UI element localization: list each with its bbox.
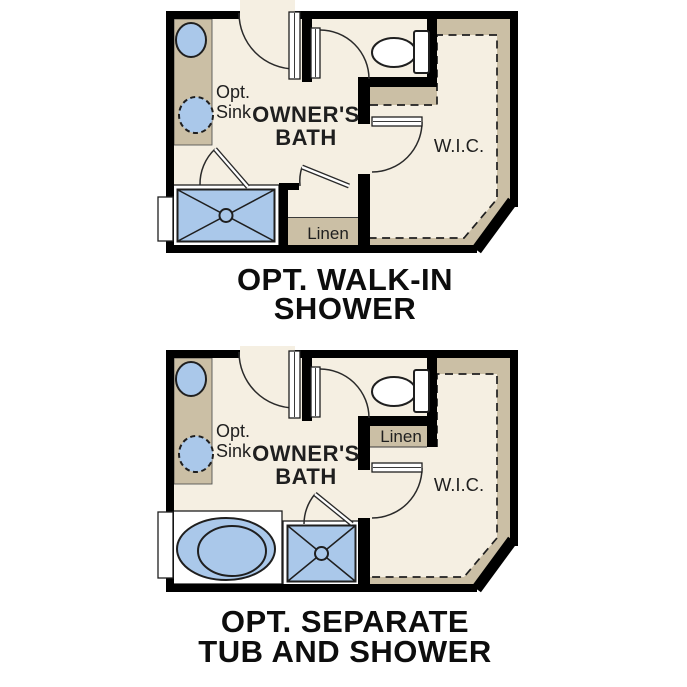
label-linen: Linen — [307, 224, 349, 243]
interior-wall-linen-top — [279, 183, 299, 190]
optional-sink — [179, 97, 213, 133]
floor-plan-page: Opt. Sink OWNER'S BATH W.I.C. Linen OPT.… — [0, 0, 687, 687]
toilet-tank — [414, 31, 429, 73]
window — [158, 197, 173, 241]
exterior-wall-right — [510, 11, 518, 207]
optional-sink — [179, 436, 213, 472]
exterior-wall-right — [510, 350, 518, 546]
caption-walk-in-shower-line2: SHOWER — [274, 291, 417, 326]
interior-wall-wic — [358, 518, 370, 592]
toilet-bowl — [372, 38, 416, 67]
plan-separate-tub-and-shower: Opt. Sink OWNER'S BATH W.I.C. Linen OPT.… — [158, 346, 518, 669]
label-wic: W.I.C. — [434, 474, 484, 495]
label-bath: BATH — [275, 464, 336, 489]
label-wic: W.I.C. — [434, 135, 484, 156]
shower-drain — [220, 209, 233, 222]
toilet-tank — [414, 370, 429, 412]
window — [158, 512, 173, 578]
label-linen: Linen — [380, 427, 422, 446]
bathtub-inner — [198, 526, 266, 576]
plan-walk-in-shower: Opt. Sink OWNER'S BATH W.I.C. Linen OPT.… — [158, 0, 518, 326]
exterior-wall-top — [166, 350, 240, 358]
label-owners: OWNER'S — [252, 441, 360, 466]
label-opt: Opt. — [216, 421, 250, 441]
label-bath: BATH — [275, 125, 336, 150]
sink — [176, 362, 206, 396]
exterior-wall-top — [295, 11, 518, 19]
shower-drain — [315, 547, 328, 560]
caption-separate-tub-shower-line2: TUB AND SHOWER — [198, 634, 491, 669]
toilet-bowl — [372, 377, 416, 406]
exterior-wall-top — [295, 350, 518, 358]
exterior-wall-top — [166, 11, 240, 19]
label-sink: Sink — [216, 102, 252, 122]
exterior-wall-bottom — [166, 245, 477, 253]
interior-wall-wic — [358, 174, 370, 253]
entry-opening-floor — [240, 0, 295, 19]
interior-wall-linen — [279, 183, 288, 253]
label-opt: Opt. — [216, 82, 250, 102]
sink — [176, 23, 206, 57]
interior-wall-linen-right — [427, 416, 437, 447]
entry-opening-floor — [240, 346, 295, 358]
label-sink: Sink — [216, 441, 252, 461]
floor-plan-diagram: Opt. Sink OWNER'S BATH W.I.C. Linen OPT.… — [0, 0, 687, 687]
exterior-wall-bottom — [166, 584, 477, 592]
label-owners: OWNER'S — [252, 102, 360, 127]
